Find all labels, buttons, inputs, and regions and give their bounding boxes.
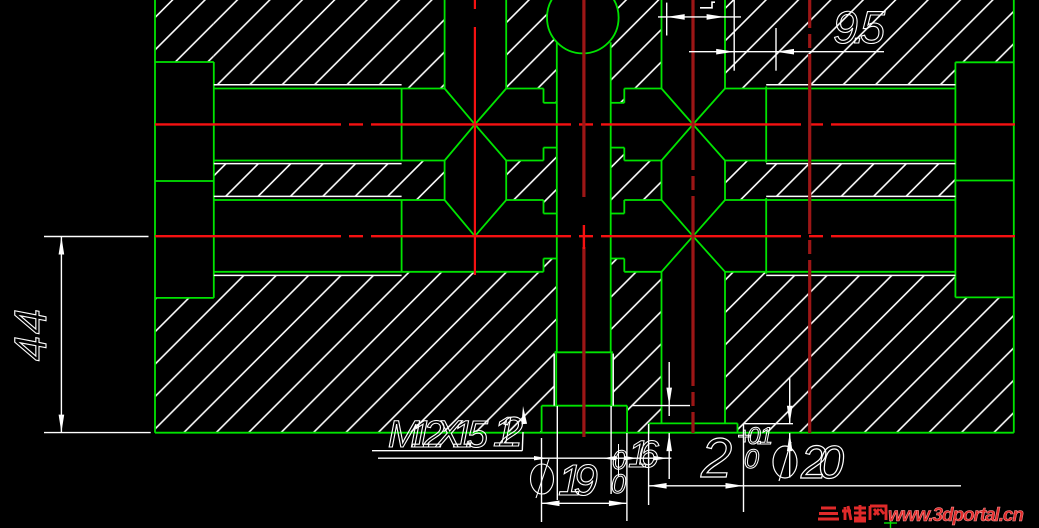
svg-text:0: 0 <box>744 444 759 474</box>
svg-text:19: 19 <box>558 456 598 505</box>
svg-text:12: 12 <box>493 408 523 455</box>
svg-text:www.3dportal.cn: www.3dportal.cn <box>888 505 1024 526</box>
svg-text:M12X1.5: M12X1.5 <box>388 414 489 456</box>
svg-text:2: 2 <box>700 426 732 489</box>
svg-text:16: 16 <box>628 434 660 476</box>
svg-text:20: 20 <box>800 436 844 488</box>
svg-text:44: 44 <box>5 309 56 361</box>
svg-text:9.5: 9.5 <box>833 2 886 53</box>
